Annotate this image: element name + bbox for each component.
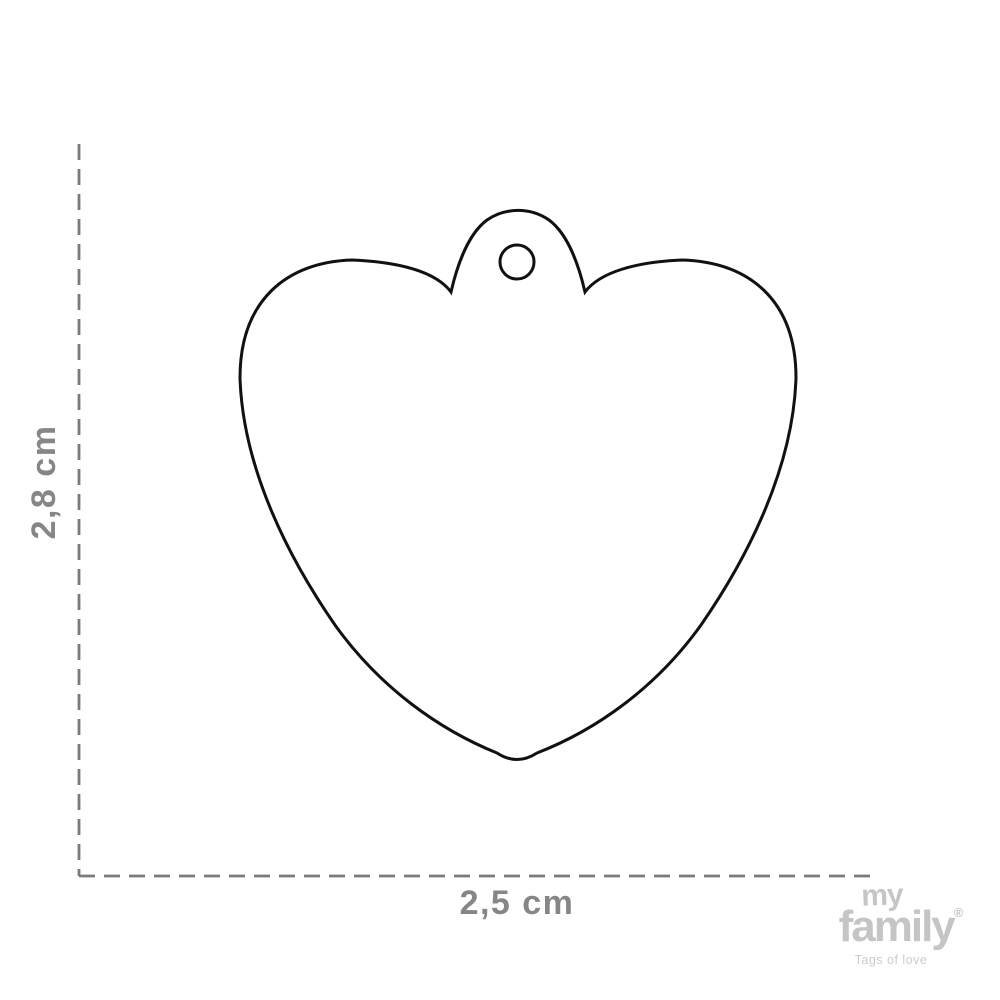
dimension-diagram: 2,8 cm 2,5 cm my family® Tags of love (0, 0, 1000, 1000)
logo-tagline: Tags of love (816, 954, 966, 967)
tag-dimension-drawing: 2,8 cm 2,5 cm (0, 0, 1000, 1000)
myfamily-logo: my family® Tags of love (826, 881, 976, 967)
heart-tag-outline (240, 210, 796, 759)
tag-hole (500, 245, 534, 279)
height-dimension-label: 2,8 cm (25, 425, 63, 540)
width-dimension-label: 2,5 cm (460, 884, 575, 922)
logo-word-my: my (807, 878, 958, 913)
